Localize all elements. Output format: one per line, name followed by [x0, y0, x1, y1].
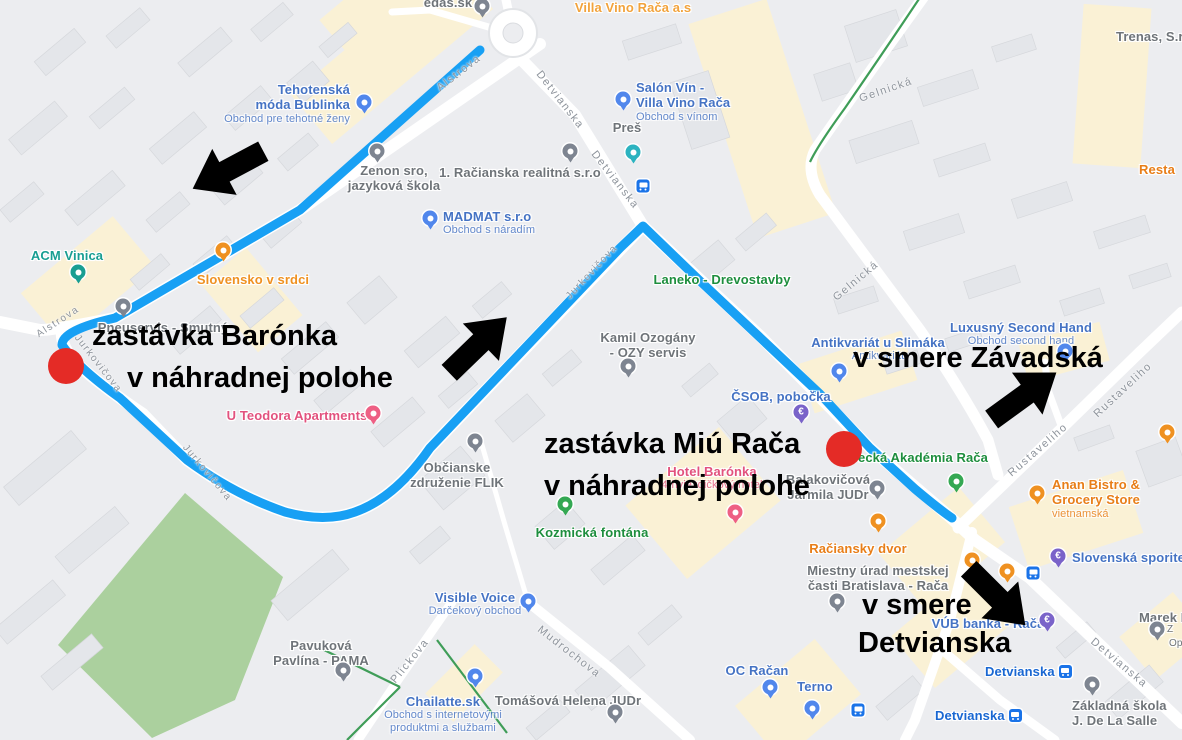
annotation-direction-detvianska-line2: Detvianska: [858, 629, 1011, 658]
annotation-stop2-line2: v náhradnej polohe: [544, 472, 810, 501]
annotation-stop1-line1: zastávka Barónka: [92, 322, 337, 351]
annotation-direction-zavadska: v smere Závadská: [853, 344, 1103, 373]
map-screenshot: edas.sk Villa Vino Rača a.s Trenas, S.r.…: [0, 0, 1182, 740]
annotation-text-layer: zastávka Barónka v náhradnej polohe zast…: [0, 0, 1182, 740]
annotation-stop2-line1: zastávka Miú Rača: [544, 430, 800, 459]
annotation-stop1-line2: v náhradnej polohe: [127, 364, 393, 393]
annotation-direction-detvianska-line1: v smere: [862, 591, 972, 620]
